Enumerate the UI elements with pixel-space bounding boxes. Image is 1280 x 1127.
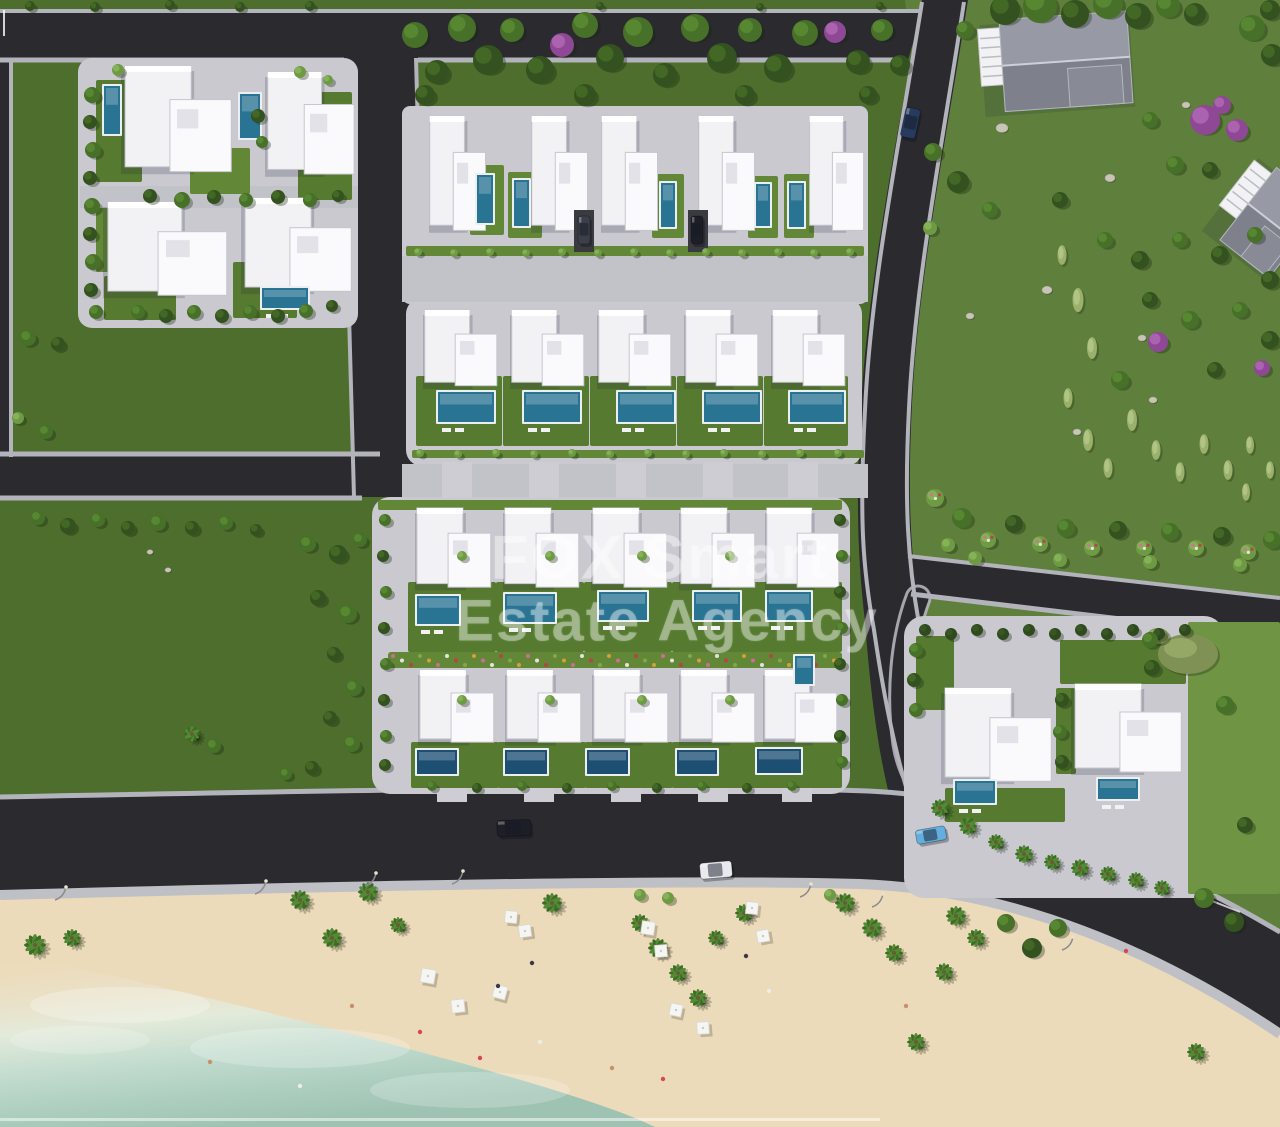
tree-highlight (698, 782, 704, 788)
sea-foam (10, 1026, 150, 1054)
tree-highlight (757, 4, 761, 8)
tree-highlight (908, 674, 916, 682)
flower (1195, 547, 1198, 550)
cypress-highlight (1247, 437, 1252, 448)
flower (499, 654, 503, 658)
tree-highlight (942, 539, 950, 547)
flower (1039, 543, 1042, 546)
tree-highlight (415, 249, 419, 253)
cypress-highlight (1084, 431, 1090, 445)
tree-highlight (340, 606, 350, 616)
tree-highlight (1053, 193, 1062, 202)
tree-highlight (1056, 694, 1064, 702)
villa-parapet (681, 670, 727, 676)
tree-highlight (378, 551, 385, 558)
palm-trunk (714, 936, 718, 940)
flower (1094, 544, 1097, 547)
flower (598, 663, 602, 667)
villa-roof-detail (726, 163, 737, 184)
flower (589, 659, 593, 663)
sea-foam (190, 1028, 410, 1068)
tree-highlight (86, 143, 95, 152)
palm-trunk (1160, 886, 1164, 890)
tree-highlight (552, 35, 565, 48)
flower (715, 654, 719, 658)
sun-lounger (721, 428, 730, 432)
cypress-highlight (1243, 484, 1248, 495)
villa-parapet (420, 670, 466, 676)
tree-highlight (709, 45, 726, 62)
villa-parapet (507, 670, 553, 676)
palm-trunk (70, 936, 74, 940)
tree-highlight (502, 20, 515, 33)
tree-highlight (379, 623, 386, 630)
tree-highlight (311, 591, 320, 600)
tree-highlight (1248, 228, 1257, 237)
palm-trunk (954, 914, 958, 918)
flower (400, 659, 404, 663)
tree-highlight (635, 890, 642, 897)
tree-highlight (597, 3, 601, 7)
tree-highlight (151, 516, 160, 525)
palm-trunk (676, 971, 680, 975)
tree-highlight (835, 659, 842, 666)
flower (409, 663, 413, 667)
person (767, 989, 771, 993)
car-cabin (580, 223, 589, 236)
tree-highlight (559, 249, 563, 253)
rock (1042, 286, 1052, 294)
palm-trunk (1106, 872, 1110, 876)
tree-highlight (347, 681, 356, 690)
villa-roof-detail (460, 341, 474, 355)
rock (1073, 429, 1081, 435)
car-highlight (700, 864, 707, 868)
tree-highlight (40, 426, 48, 434)
flower (634, 654, 638, 658)
tree-highlight (667, 250, 671, 254)
tree-highlight (826, 23, 838, 35)
person (496, 984, 500, 988)
tree-highlight (972, 625, 979, 632)
tree-highlight (638, 696, 644, 702)
flower (472, 654, 476, 658)
tree-highlight (324, 76, 330, 82)
tree-highlight (354, 534, 362, 542)
tree-highlight (998, 629, 1005, 636)
tree-highlight (281, 769, 288, 776)
tree-highlight (345, 737, 354, 746)
tree-highlight (379, 695, 386, 702)
palm-trunk (1194, 1050, 1198, 1054)
villa-parapet (417, 508, 463, 514)
tree-highlight (797, 450, 801, 454)
tree-highlight (1050, 629, 1057, 636)
tree-highlight (327, 301, 334, 308)
tree-highlight (455, 451, 459, 455)
flower (544, 663, 548, 667)
flower (427, 659, 431, 663)
flower (697, 659, 701, 663)
tree-highlight (860, 87, 870, 97)
tree-highlight (91, 3, 97, 9)
villa-parapet (505, 508, 551, 514)
tree-highlight (595, 250, 599, 254)
tree-highlight (1214, 97, 1224, 107)
flower (526, 654, 530, 658)
tree-highlight (160, 310, 168, 318)
flower (987, 539, 990, 542)
cypress-highlight (1088, 339, 1094, 353)
tree-highlight (910, 704, 918, 712)
tree-highlight (86, 255, 95, 264)
swimming-pool (787, 181, 806, 229)
palm-trunk (994, 840, 998, 844)
pool-highlight (440, 394, 492, 405)
cypress-highlight (1176, 463, 1181, 476)
palm-trunk (1078, 866, 1082, 870)
tree-highlight (946, 629, 953, 636)
tree-highlight (1024, 940, 1035, 951)
tree-highlight (21, 331, 30, 340)
tree-highlight (306, 2, 312, 8)
tree-highlight (132, 306, 140, 314)
person (530, 961, 534, 965)
pool-highlight (419, 598, 457, 608)
tree-highlight (1226, 914, 1237, 925)
tree-highlight (969, 552, 977, 560)
villa-parapet (686, 310, 731, 316)
tree-highlight (837, 551, 844, 558)
tree-highlight (924, 222, 932, 230)
tree-highlight (1054, 554, 1062, 562)
person (538, 1040, 542, 1044)
palm-trunk (966, 824, 970, 828)
tree-highlight (739, 250, 743, 254)
villa-roof-detail (310, 114, 327, 133)
villa-roof-detail (457, 163, 468, 184)
watermark-line2: Estate Agency (455, 588, 879, 655)
driveway (703, 462, 733, 498)
villa-parapet (532, 116, 567, 122)
tree-highlight (835, 515, 842, 522)
street-lamp-head (809, 882, 813, 886)
sun-lounger (528, 428, 537, 432)
swimming-pool (754, 182, 772, 228)
swimming-pool (512, 178, 531, 228)
flower (661, 654, 665, 658)
tree-highlight (877, 3, 881, 7)
tree-highlight (1143, 293, 1152, 302)
sun-lounger (541, 428, 550, 432)
tree-highlight (873, 21, 885, 33)
tree-highlight (910, 644, 918, 652)
car-highlight (579, 217, 581, 223)
flower (1198, 544, 1201, 547)
tree-highlight (458, 696, 464, 702)
house-wing-roof (1067, 65, 1124, 107)
palm-trunk (298, 898, 302, 902)
palm-trunk (33, 943, 37, 947)
tree-highlight (427, 62, 440, 75)
cypress-highlight (1224, 461, 1229, 474)
sun-lounger (1115, 805, 1124, 809)
sun-lounger (1102, 805, 1111, 809)
swimming-pool (102, 84, 122, 136)
tree-highlight (85, 88, 94, 97)
person (208, 1060, 212, 1064)
flower (983, 536, 986, 539)
villa-parapet (430, 116, 465, 122)
tree-highlight (1233, 303, 1242, 312)
tree-highlight (216, 310, 224, 318)
flower (990, 536, 993, 539)
sun-lounger (622, 428, 631, 432)
tree-highlight (84, 172, 92, 180)
tree-highlight (957, 22, 967, 32)
tree-highlight (220, 517, 228, 525)
watermark-line1: FOX Smart (491, 523, 829, 594)
tree-highlight (663, 893, 670, 900)
tree-highlight (653, 784, 659, 790)
tree-highlight (380, 760, 387, 767)
tree-highlight (381, 659, 388, 666)
tree-highlight (576, 86, 588, 98)
swimming-pool (659, 181, 677, 229)
palm-trunk (1134, 878, 1138, 882)
flower (562, 659, 566, 663)
palm-trunk (870, 926, 874, 930)
tree-highlight (1058, 520, 1068, 530)
swimming-pool (793, 654, 815, 686)
tree-highlight (1264, 532, 1274, 542)
flower (517, 663, 521, 667)
tree-highlight (1112, 372, 1122, 382)
cypress-highlight (1073, 290, 1080, 305)
villa-roof-detail (547, 341, 561, 355)
tree-highlight (598, 46, 613, 61)
villa-parapet (602, 116, 637, 122)
rock (165, 568, 171, 573)
tree-highlight (1186, 5, 1198, 17)
rock (1149, 397, 1157, 403)
car-cabin (923, 829, 938, 842)
cypress-highlight (1128, 411, 1134, 425)
tree-highlight (85, 284, 93, 292)
tree-highlight (1262, 2, 1273, 13)
villa-roof-detail (800, 700, 814, 713)
tree-highlight (52, 338, 60, 346)
flower (508, 659, 512, 663)
flower (625, 663, 629, 667)
flower (934, 497, 937, 500)
sun-lounger (708, 428, 717, 432)
pool-highlight (507, 752, 545, 760)
flower (688, 654, 692, 658)
pool-highlight (759, 751, 799, 759)
tree-highlight (607, 451, 611, 455)
tree-highlight (13, 413, 20, 420)
villa-parapet (767, 508, 812, 514)
flower (553, 654, 557, 658)
sun-lounger (635, 428, 644, 432)
swimming-pool (475, 173, 495, 225)
tree-highlight (1234, 559, 1242, 567)
street-lamp-head (881, 892, 885, 896)
tree-highlight (475, 47, 492, 64)
flower (1146, 544, 1149, 547)
tree-highlight (920, 625, 927, 632)
tree-highlight (493, 450, 497, 454)
pool-highlight (479, 177, 491, 194)
tree-highlight (487, 249, 491, 253)
tree-highlight (1182, 312, 1192, 322)
rock (966, 313, 974, 319)
swimming-pool (675, 748, 719, 776)
tree-highlight (608, 782, 614, 788)
villa-roof-detail (836, 163, 847, 184)
tree-highlight (1143, 113, 1152, 122)
tree-highlight (26, 2, 32, 8)
driveway (616, 462, 646, 498)
villa-parapet (810, 116, 844, 122)
cypress-highlight (1064, 389, 1069, 402)
flower (481, 659, 485, 663)
tree-highlight (703, 249, 707, 253)
tree-highlight (251, 525, 258, 532)
tree-highlight (428, 782, 434, 788)
flower (1250, 548, 1253, 551)
person (478, 1056, 482, 1060)
tree-highlight (788, 782, 794, 788)
flower (616, 659, 620, 663)
villa-parapet (599, 310, 644, 316)
person (744, 954, 748, 958)
person (418, 1030, 422, 1034)
access-lane (402, 256, 868, 302)
flower (930, 493, 933, 496)
tree-highlight (740, 20, 753, 33)
villa-parapet (425, 310, 470, 316)
flower (1035, 540, 1038, 543)
villa-roof-detail (1127, 720, 1148, 736)
tree-highlight (1050, 920, 1060, 930)
tree-highlight (1145, 661, 1154, 670)
tree-highlight (1127, 5, 1141, 19)
palm-trunk (1050, 860, 1054, 864)
street-lamp-head (1071, 935, 1075, 939)
sun-lounger (959, 809, 968, 813)
car-highlight (498, 821, 505, 824)
palm-trunk (914, 1040, 918, 1044)
pool-highlight (663, 185, 673, 200)
tree-highlight (949, 173, 961, 185)
flower (724, 659, 728, 663)
person (610, 1066, 614, 1070)
tree-highlight (837, 695, 844, 702)
pool-highlight (679, 752, 715, 760)
tree-highlight (1173, 233, 1182, 242)
tree-highlight (528, 58, 543, 73)
swimming-pool (415, 748, 459, 776)
flower (571, 663, 575, 667)
pool-highlight (589, 752, 626, 760)
pool-highlight (957, 783, 993, 791)
flower (1087, 544, 1090, 547)
flower (1143, 547, 1146, 550)
villa-parapet (512, 310, 557, 316)
tree-highlight (848, 52, 861, 65)
tree-highlight (1180, 625, 1187, 632)
flower (769, 654, 773, 658)
bottom-edge-line (0, 1118, 880, 1121)
palm-trunk (974, 936, 978, 940)
flower (535, 659, 539, 663)
palm-trunk (942, 970, 946, 974)
tree-highlight (328, 648, 336, 656)
villa-roof-detail (721, 341, 735, 355)
tree-highlight (775, 249, 779, 253)
tree-highlight (333, 191, 340, 198)
pool-highlight (1100, 781, 1136, 788)
tree-highlight (523, 250, 527, 254)
tree-highlight (381, 587, 388, 594)
tree-highlight (306, 762, 314, 770)
tree-highlight (1212, 247, 1222, 257)
tree-highlight (1262, 332, 1272, 342)
palm-trunk (892, 951, 896, 955)
palm-trunk (1022, 852, 1026, 856)
person (298, 1084, 302, 1088)
tree-highlight (175, 193, 184, 202)
flower (778, 659, 782, 663)
swimming-pool (755, 747, 803, 775)
tree-highlight (743, 784, 749, 790)
pool-highlight (758, 186, 768, 201)
pool-highlight (791, 185, 802, 200)
villa-roof-detail (559, 163, 570, 184)
tree-highlight (1024, 625, 1031, 632)
tree-highlight (1262, 272, 1272, 282)
person (350, 1004, 354, 1008)
tree-highlight (61, 519, 70, 528)
sun-lounger (434, 630, 443, 634)
tree-highlight (208, 740, 216, 748)
tree-highlight (983, 203, 992, 212)
tree-highlight (518, 782, 524, 788)
palm-trunk (638, 921, 642, 925)
tree-highlight (954, 510, 965, 521)
tree-highlight (1098, 233, 1107, 242)
pool-highlight (620, 394, 672, 405)
villa-parapet (773, 310, 818, 316)
tree-highlight (300, 305, 308, 313)
tree-highlight (759, 451, 763, 455)
cypress-highlight (1104, 459, 1109, 472)
person (904, 1004, 908, 1008)
street-lamp-head (264, 879, 268, 883)
sun-lounger (455, 428, 464, 432)
aerial-development-rendering: FOX Smart Estate Agency (0, 0, 1280, 1127)
flower (1191, 544, 1194, 547)
driveway (788, 462, 818, 498)
tree-highlight (835, 731, 842, 738)
driveway (442, 462, 472, 498)
tree-highlight (473, 784, 479, 790)
tree-highlight (1228, 121, 1240, 133)
tree-highlight (1144, 556, 1152, 564)
rock (1138, 335, 1146, 341)
